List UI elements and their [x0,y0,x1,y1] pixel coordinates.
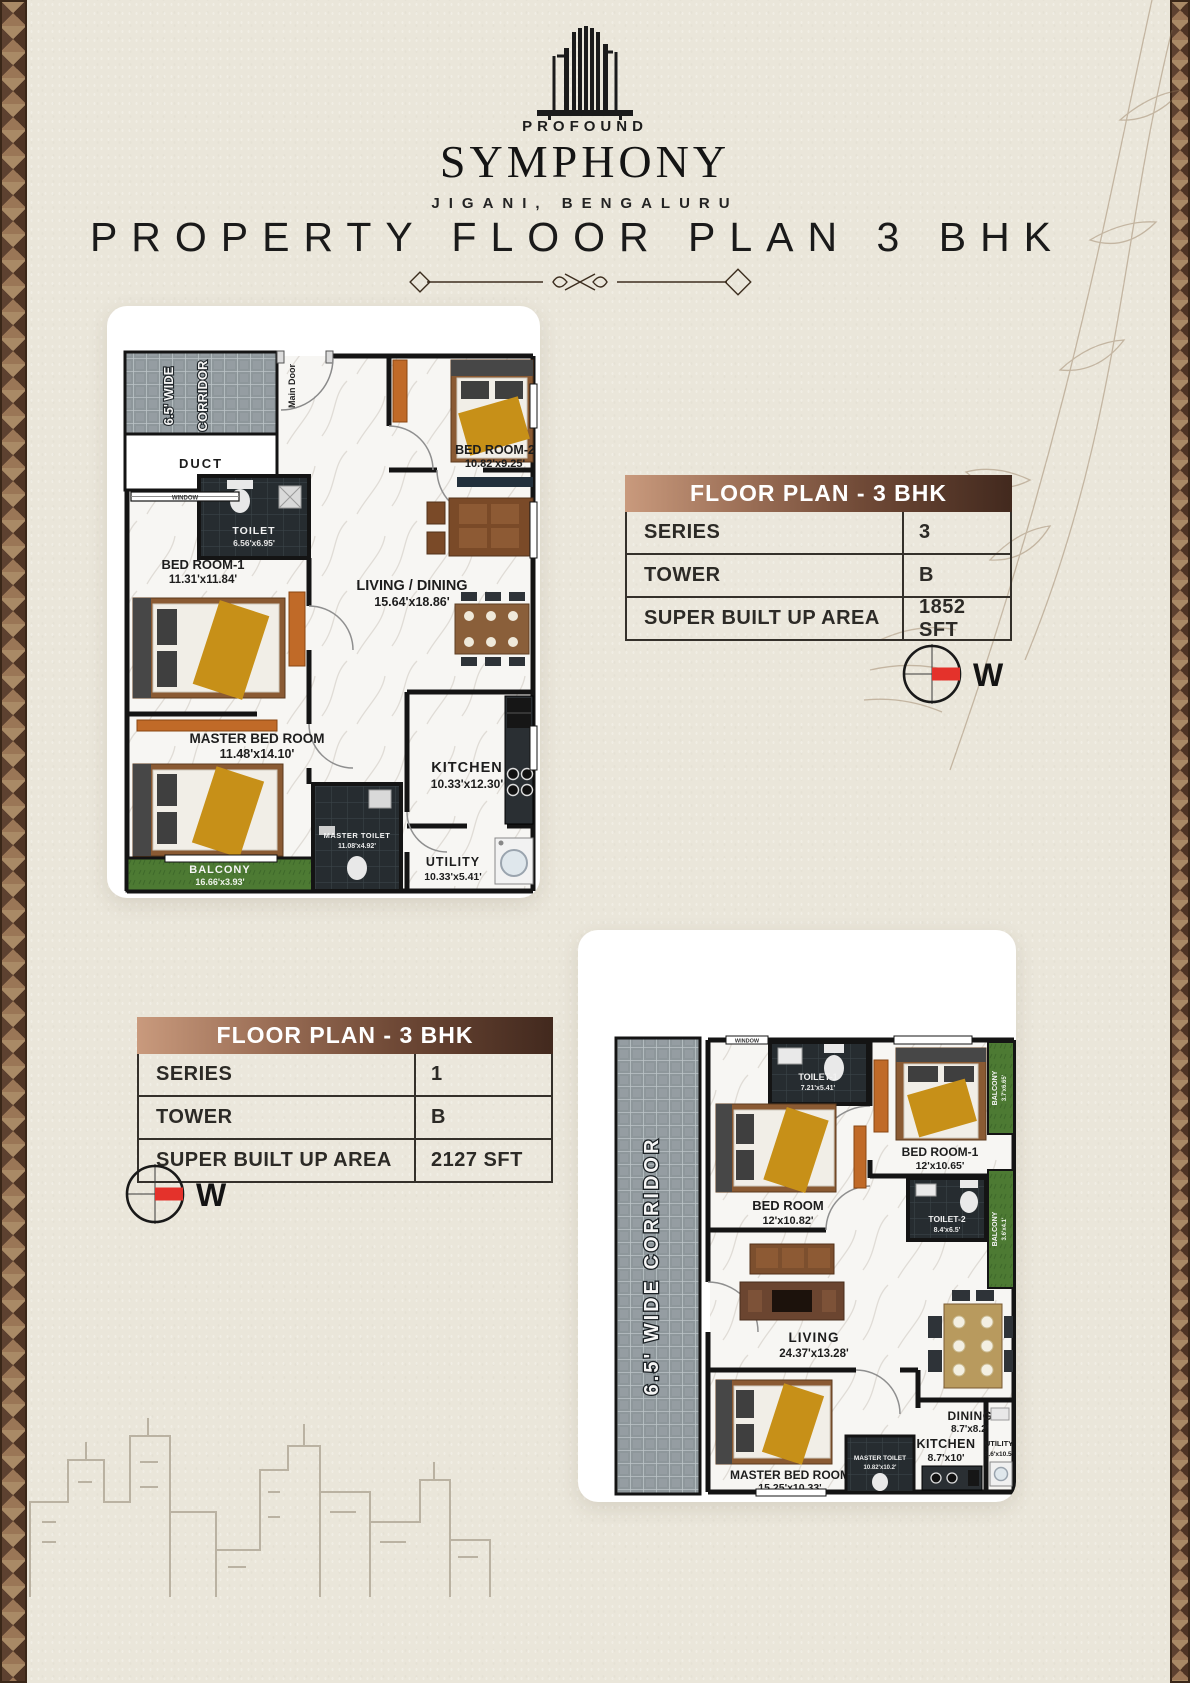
row-value: 1852 SFT [902,598,1010,639]
row-label: SERIES [139,1054,414,1095]
wardrobe-icon [874,1060,888,1132]
table-row: SERIES 3 [627,512,1010,553]
room-label-balcony1: BALCONY [992,1070,999,1105]
room-label-living: LIVING / DINING [356,578,467,594]
ornamental-border-right [1170,0,1190,1683]
bed-icon [896,1048,986,1140]
washing-machine-icon [990,1462,1012,1486]
balcony-area: BALCONY 16.66'x3.93' [127,855,313,891]
room-dim-bedroom: 12'x10.82' [762,1215,813,1227]
room-dim-dining: 8.7'x8.2' [951,1424,989,1435]
toilet-room: TOILET 6.56'x6.95' [199,476,309,558]
wardrobe-icon [289,592,305,666]
skyline-sketch-decoration [18,1352,518,1602]
floorplan-card-a: 6.5' WIDE CORRIDOR DUCT [107,306,540,898]
wardrobe-icon [393,360,407,422]
table-row: TOWER B [139,1095,551,1138]
room-dim-bedroom2: 10.82'x9.25' [465,458,526,470]
master-toilet-room: MASTER TOILET 11.08'x4.92' [313,784,401,891]
toilet1-room: TOILET-1 7.21'x5.41' [770,1042,868,1104]
room-label-toilet2: TOILET-2 [928,1214,965,1224]
shelf-icon [137,720,277,731]
room-dim-master-toilet: 10.82'x10.2' [864,1465,897,1471]
room-label-master-toilet: MASTER TOILET [854,1455,906,1462]
table-row: SERIES 1 [139,1054,551,1095]
window-label: WINDOW [172,496,199,502]
brand-logo: PROFOUND SYMPHONY JIGANI, BENGALURU [15,26,1155,212]
corridor-label-line2: CORRIDOR [195,360,210,431]
window-bar-bottom [756,1489,826,1496]
main-door-label: Main Door [287,364,297,408]
table-row: TOWER B [627,553,1010,596]
room-label-bedroom1: BED ROOM-1 [902,1145,979,1159]
info-table-a-header: FLOOR PLAN - 3 BHK [625,475,1012,512]
floorplan-a-drawing: 6.5' WIDE CORRIDOR DUCT [107,306,540,898]
room-label-toilet1: TOILET-1 [798,1072,837,1082]
room-dim-utility: 10.33'x5.41' [424,871,482,883]
brochure-page: PROFOUND SYMPHONY JIGANI, BENGALURU PROP… [0,0,1190,1683]
floorplan-card-b: 6.5' WIDE CORRIDOR [578,930,1016,1502]
logo-building-icon [510,26,660,120]
corridor-area: 6.5' WIDE CORRIDOR [125,352,277,434]
compass-w-label: W [973,657,1004,693]
row-label: SERIES [627,512,902,553]
room-dim-bedroom1: 12'x10.65' [916,1160,965,1172]
room-dim-toilet1: 7.21'x5.41' [801,1085,836,1092]
master-toilet-room: MASTER TOILET 10.82'x10.2' [846,1436,914,1492]
row-label: TOWER [139,1097,414,1138]
wardrobe-icon [854,1126,866,1188]
corridor-label-line1: 6.5' WIDE [161,366,176,425]
room-dim-balcony2: 3.6'x4.1' [1002,1217,1008,1240]
row-value: 2127 SFT [414,1140,551,1181]
room-label-master-bedroom: MASTER BED ROOM [190,731,325,746]
title-divider-icon [405,266,755,298]
brand-symphony: SYMPHONY [15,135,1155,188]
room-dim-kitchen: 10.33'x12.30' [431,777,504,791]
ornamental-border-left [0,0,27,1683]
bed-icon [133,598,285,700]
corridor-area: 6.5' WIDE CORRIDOR [616,1038,700,1494]
row-value: 3 [902,512,1010,553]
room-dim-balcony1: 3.7'x6.65' [1002,1074,1008,1101]
room-dim-bedroom1: 11.31'x11.84' [169,574,237,586]
row-value: 1 [414,1054,551,1095]
floorplan-b-drawing: 6.5' WIDE CORRIDOR [578,930,1016,1502]
room-dim-toilet2: 8.4'x6.5' [934,1227,961,1234]
info-table-a: FLOOR PLAN - 3 BHK SERIES 3 TOWER B SUPE… [625,475,1012,641]
room-dim-master-bedroom: 11.48'x14.10' [220,747,295,761]
kitchen-counter-icon [505,696,533,824]
table-row: SUPER BUILT UP AREA 1852 SFT [627,596,1010,639]
balcony1-area: BALCONY 3.7'x6.65' [988,1042,1014,1134]
washing-machine-icon [495,838,533,884]
room-label-kitchen: KITCHEN [916,1437,975,1451]
info-table-b-header: FLOOR PLAN - 3 BHK [137,1017,553,1054]
room-label-living: LIVING [788,1330,839,1345]
room-dim-living: 24.37'x13.28' [779,1348,849,1360]
room-label-balcony2: BALCONY [992,1211,999,1246]
sofa-icon [750,1244,834,1274]
room-label-dining: DINING [948,1409,993,1423]
room-label-utility: UTILITY [985,1439,1013,1448]
duct-label: DUCT [179,456,223,471]
sink-icon [991,1408,1009,1420]
room-dim-balcony: 16.66'x3.93' [195,877,244,887]
row-value: B [902,555,1010,596]
master-bedroom-area: MASTER BED ROOM 15.25'x10.33' [716,1380,850,1494]
page-title: PROPERTY FLOOR PLAN 3 BHK [30,214,1125,261]
bed-icon [716,1380,832,1465]
room-label-bedroom2: BED ROOM-2 [455,443,535,457]
corridor-label: 6.5' WIDE CORRIDOR [641,1137,663,1396]
room-label-toilet: TOILET [232,525,275,537]
window-bar-left: WINDOW [131,492,239,502]
room-label-balcony: BALCONY [189,864,250,876]
room-label-bedroom1: BED ROOM-1 [161,557,244,572]
room-dim-master-toilet: 11.08'x4.92' [338,843,376,850]
compass-w-label: W [196,1177,227,1213]
room-label-master-bedroom: MASTER BED ROOM [730,1468,850,1482]
row-label: TOWER [627,555,902,596]
room-dim-toilet: 6.56'x6.95' [233,538,275,548]
room-label-kitchen: KITCHEN [431,760,502,776]
window-label: WINDOW [735,1039,760,1045]
row-value: B [414,1097,551,1138]
room-label-bedroom: BED ROOM [752,1198,824,1213]
bed-icon [133,764,283,858]
balcony2-area: BALCONY 3.6'x4.1' [988,1170,1014,1288]
toilet2-room: TOILET-2 8.4'x6.5' [908,1178,986,1240]
room-dim-living: 15.64'x18.86' [374,595,449,609]
brand-location: JIGANI, BENGALURU [15,195,1155,212]
room-label-utility: UTILITY [426,855,480,869]
compass-west-icon: W [901,636,1041,714]
tv-console-icon [457,477,533,487]
bed-icon [716,1104,836,1193]
kitchen-counter-icon [922,1466,982,1490]
row-label: SUPER BUILT UP AREA [627,598,902,639]
tv-console-icon [740,1282,844,1320]
compass-west-icon: W [124,1156,264,1234]
room-label-master-toilet: MASTER TOILET [324,831,391,840]
room-dim-kitchen: 8.7'x10' [927,1452,964,1464]
room-dim-utility: 3.6'x10.5' [985,1451,1014,1458]
brand-profound: PROFOUND [15,118,1155,135]
